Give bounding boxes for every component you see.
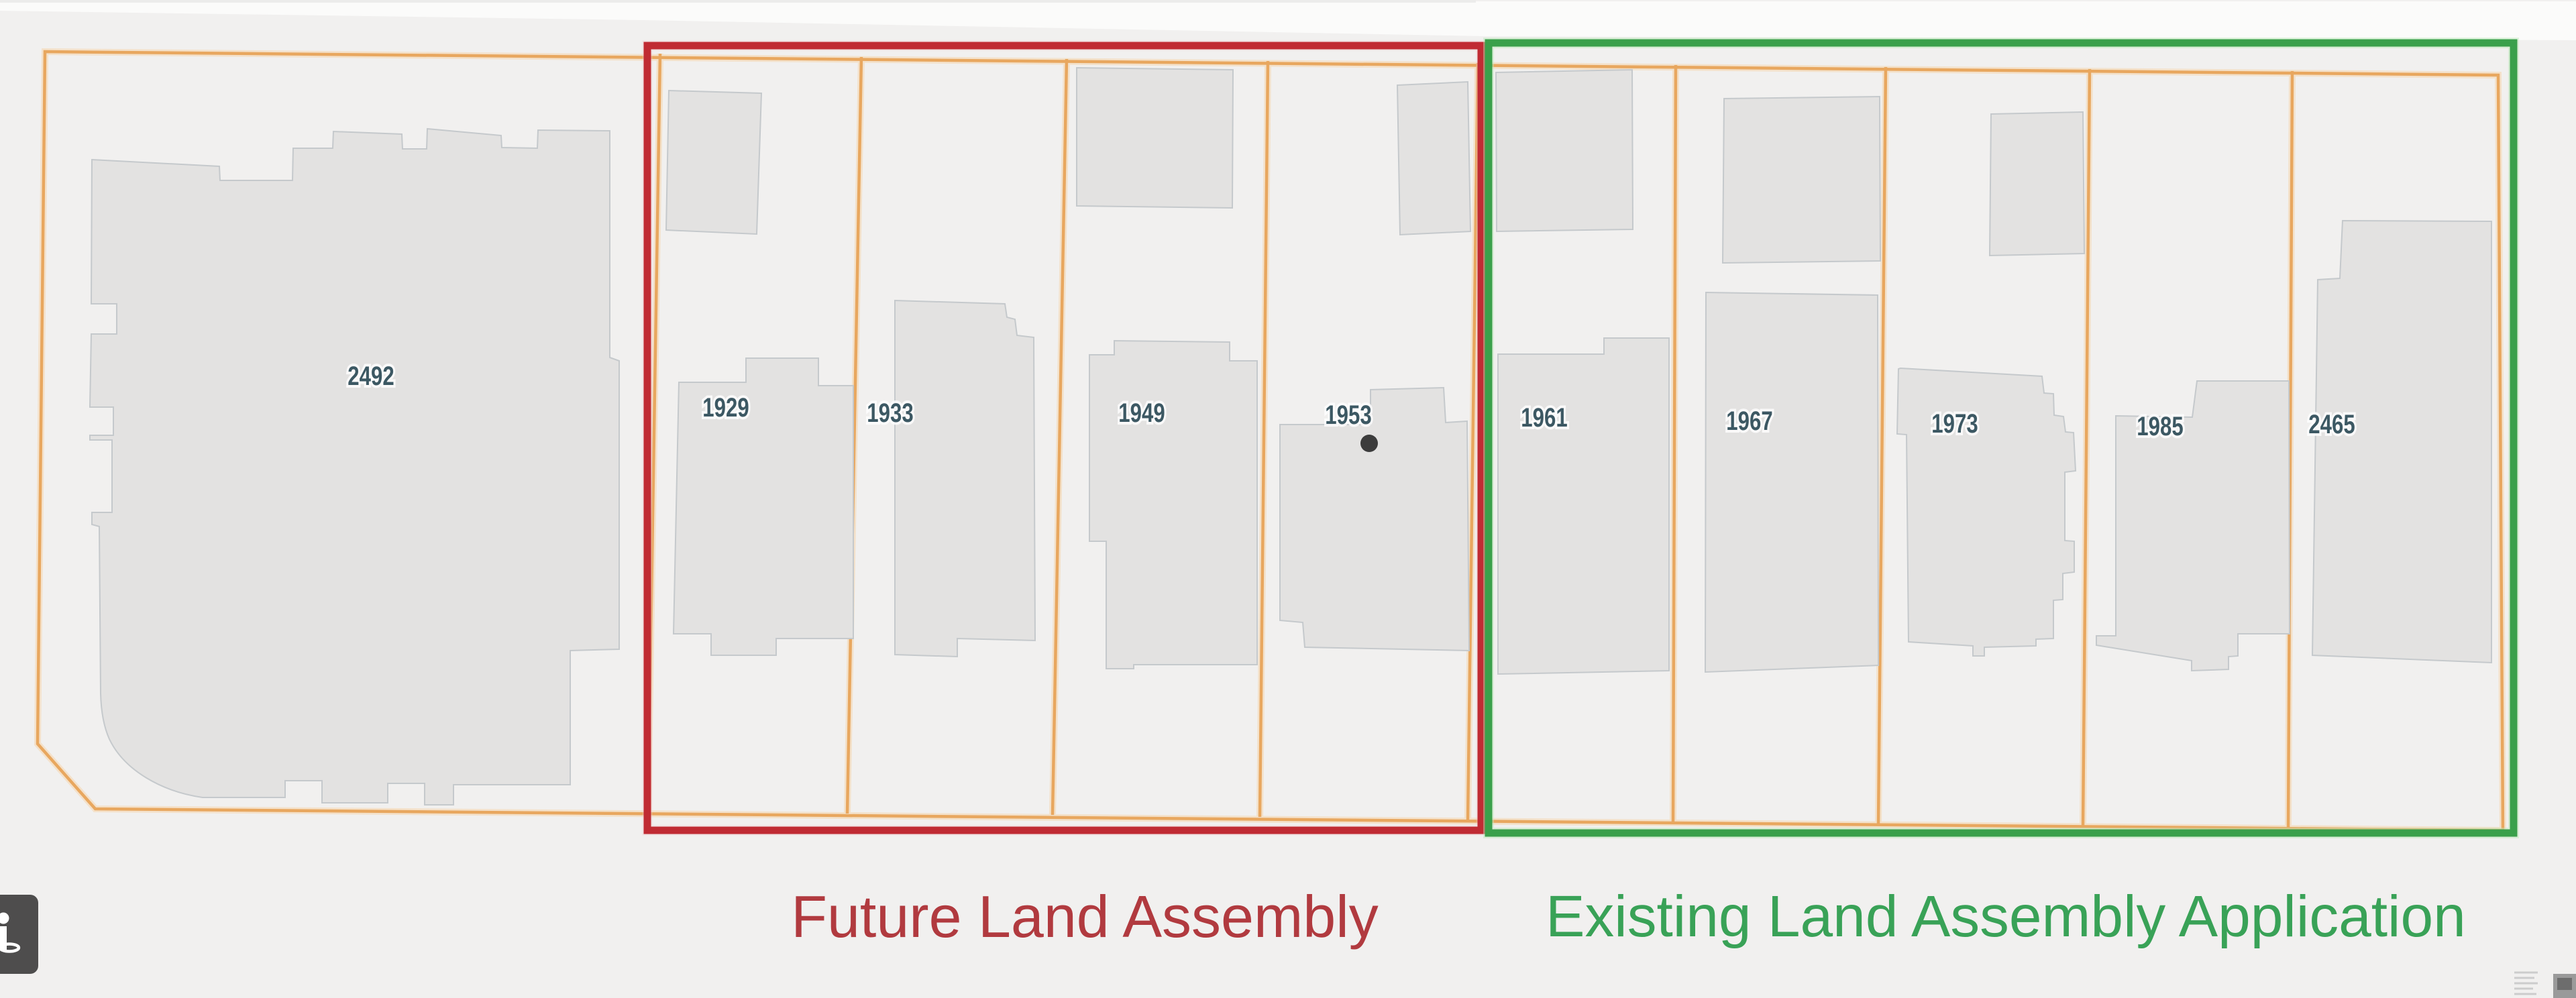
svg-text:1973: 1973 xyxy=(1931,408,1978,439)
svg-text:1967: 1967 xyxy=(1726,406,1772,436)
svg-text:1953: 1953 xyxy=(1325,400,1371,430)
svg-text:1985: 1985 xyxy=(2137,411,2183,441)
svg-text:1949: 1949 xyxy=(1118,398,1165,428)
svg-text:Future Land Assembly: Future Land Assembly xyxy=(791,883,1379,950)
svg-text:2492: 2492 xyxy=(347,361,394,391)
svg-text:1929: 1929 xyxy=(702,392,749,423)
svg-text:Existing Land Assembly Applica: Existing Land Assembly Application xyxy=(1546,883,2466,949)
svg-text:1933: 1933 xyxy=(867,398,913,428)
svg-text:1961: 1961 xyxy=(1521,402,1567,433)
svg-text:2465: 2465 xyxy=(2308,409,2355,439)
